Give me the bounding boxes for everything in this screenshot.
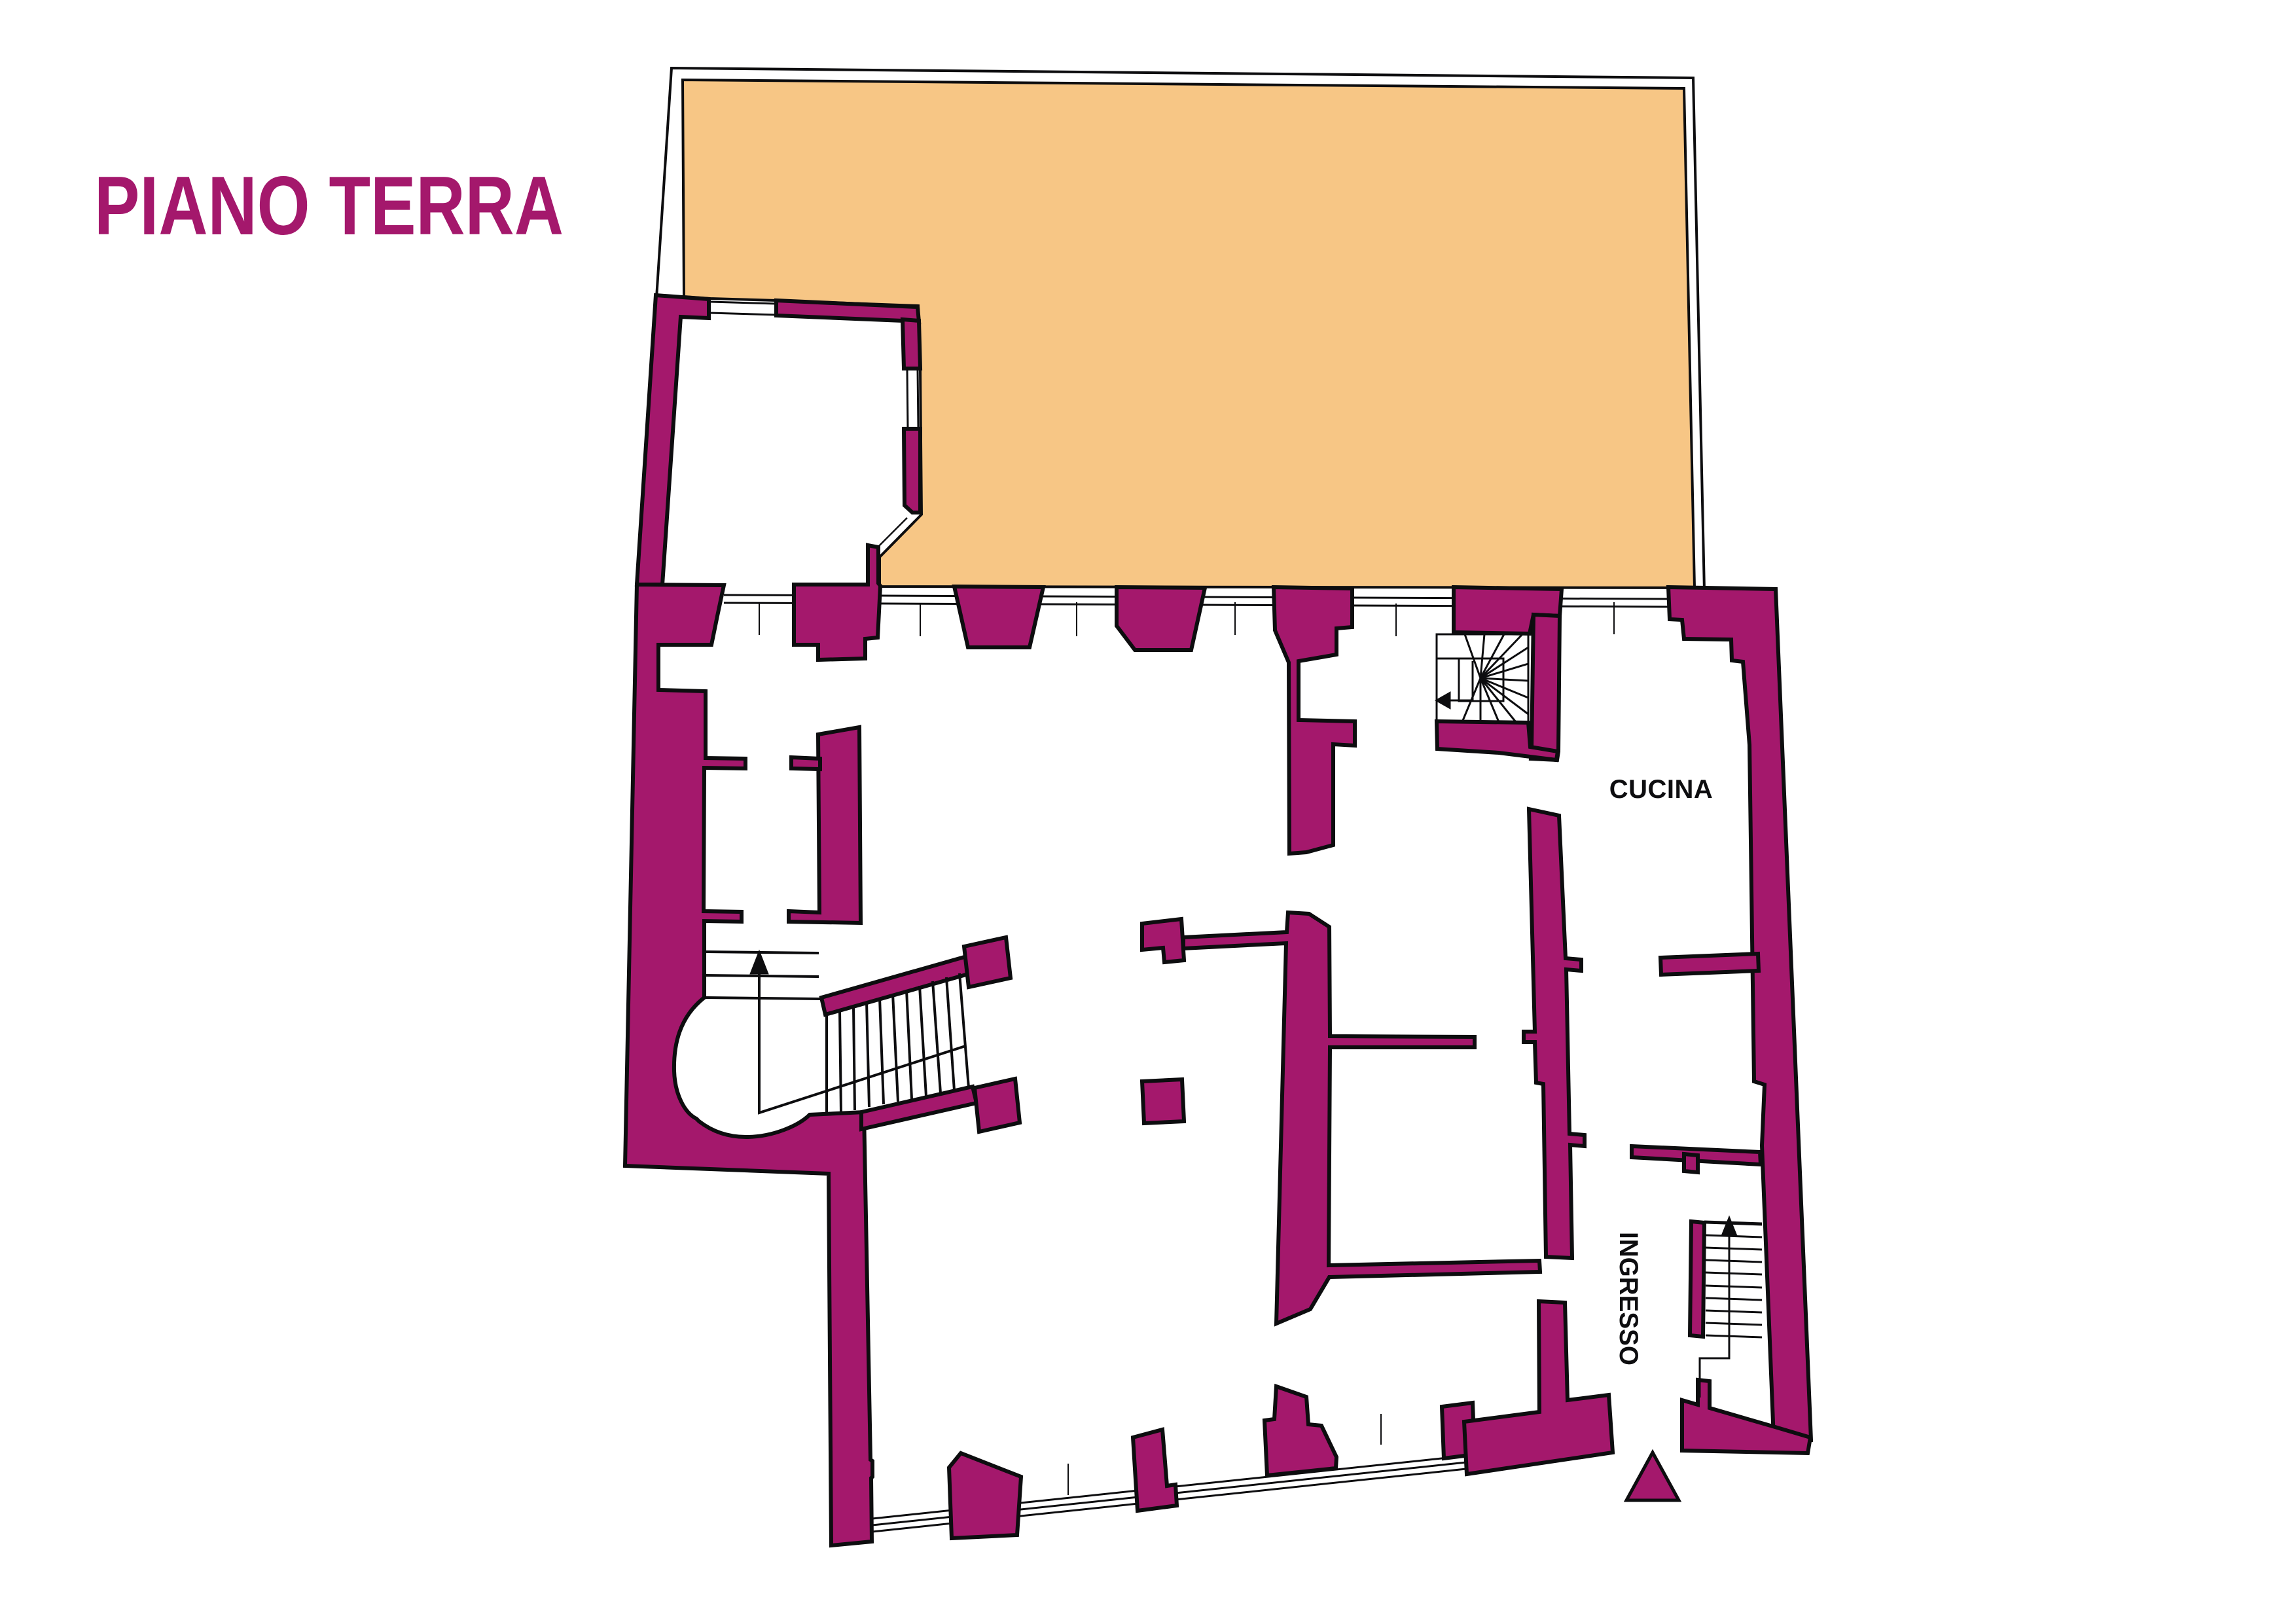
svg-text:INGRESSO: INGRESSO — [1614, 1232, 1643, 1365]
svg-text:PIANO TERRA: PIANO TERRA — [94, 159, 564, 252]
svg-text:CUCINA: CUCINA — [1609, 775, 1713, 804]
